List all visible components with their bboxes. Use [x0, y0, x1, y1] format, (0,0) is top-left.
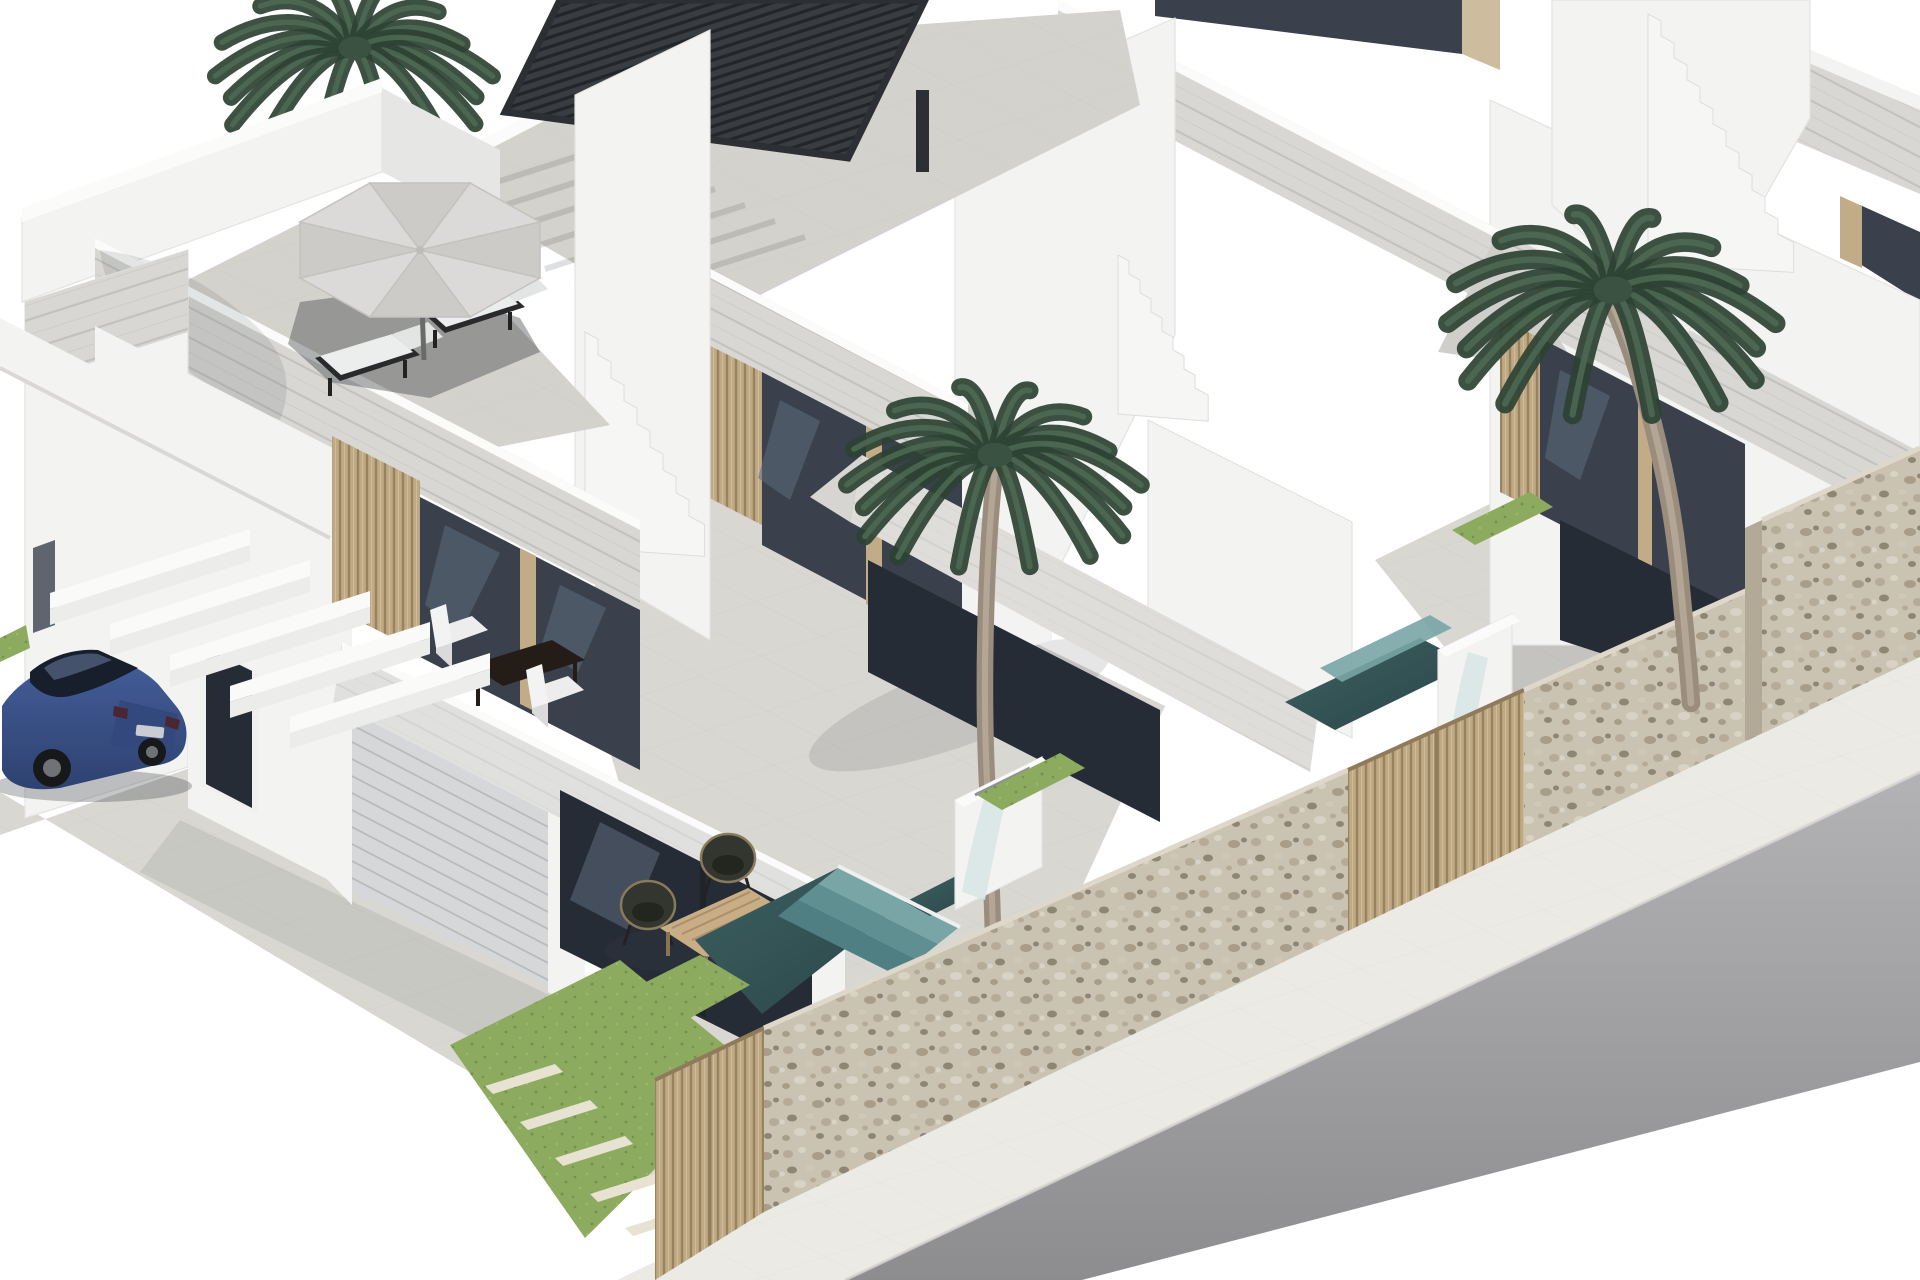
- render-viewport: Isometric 3D real-estate rendering of a …: [0, 0, 1920, 1280]
- house4-wood-sliver: [1840, 196, 1862, 268]
- palm-crown: [339, 36, 372, 59]
- stone-wall-corner-side: [1745, 520, 1762, 741]
- umbrella-finial: [416, 246, 424, 254]
- palm-crown: [1594, 276, 1633, 303]
- architectural-render: Isometric 3D real-estate rendering of a …: [0, 0, 1920, 1280]
- palm-crown: [978, 443, 1013, 468]
- car-wheel-rear-rim: [43, 759, 61, 777]
- car-wheel-front-rim: [146, 746, 158, 758]
- pergola-leg-right: [916, 90, 929, 172]
